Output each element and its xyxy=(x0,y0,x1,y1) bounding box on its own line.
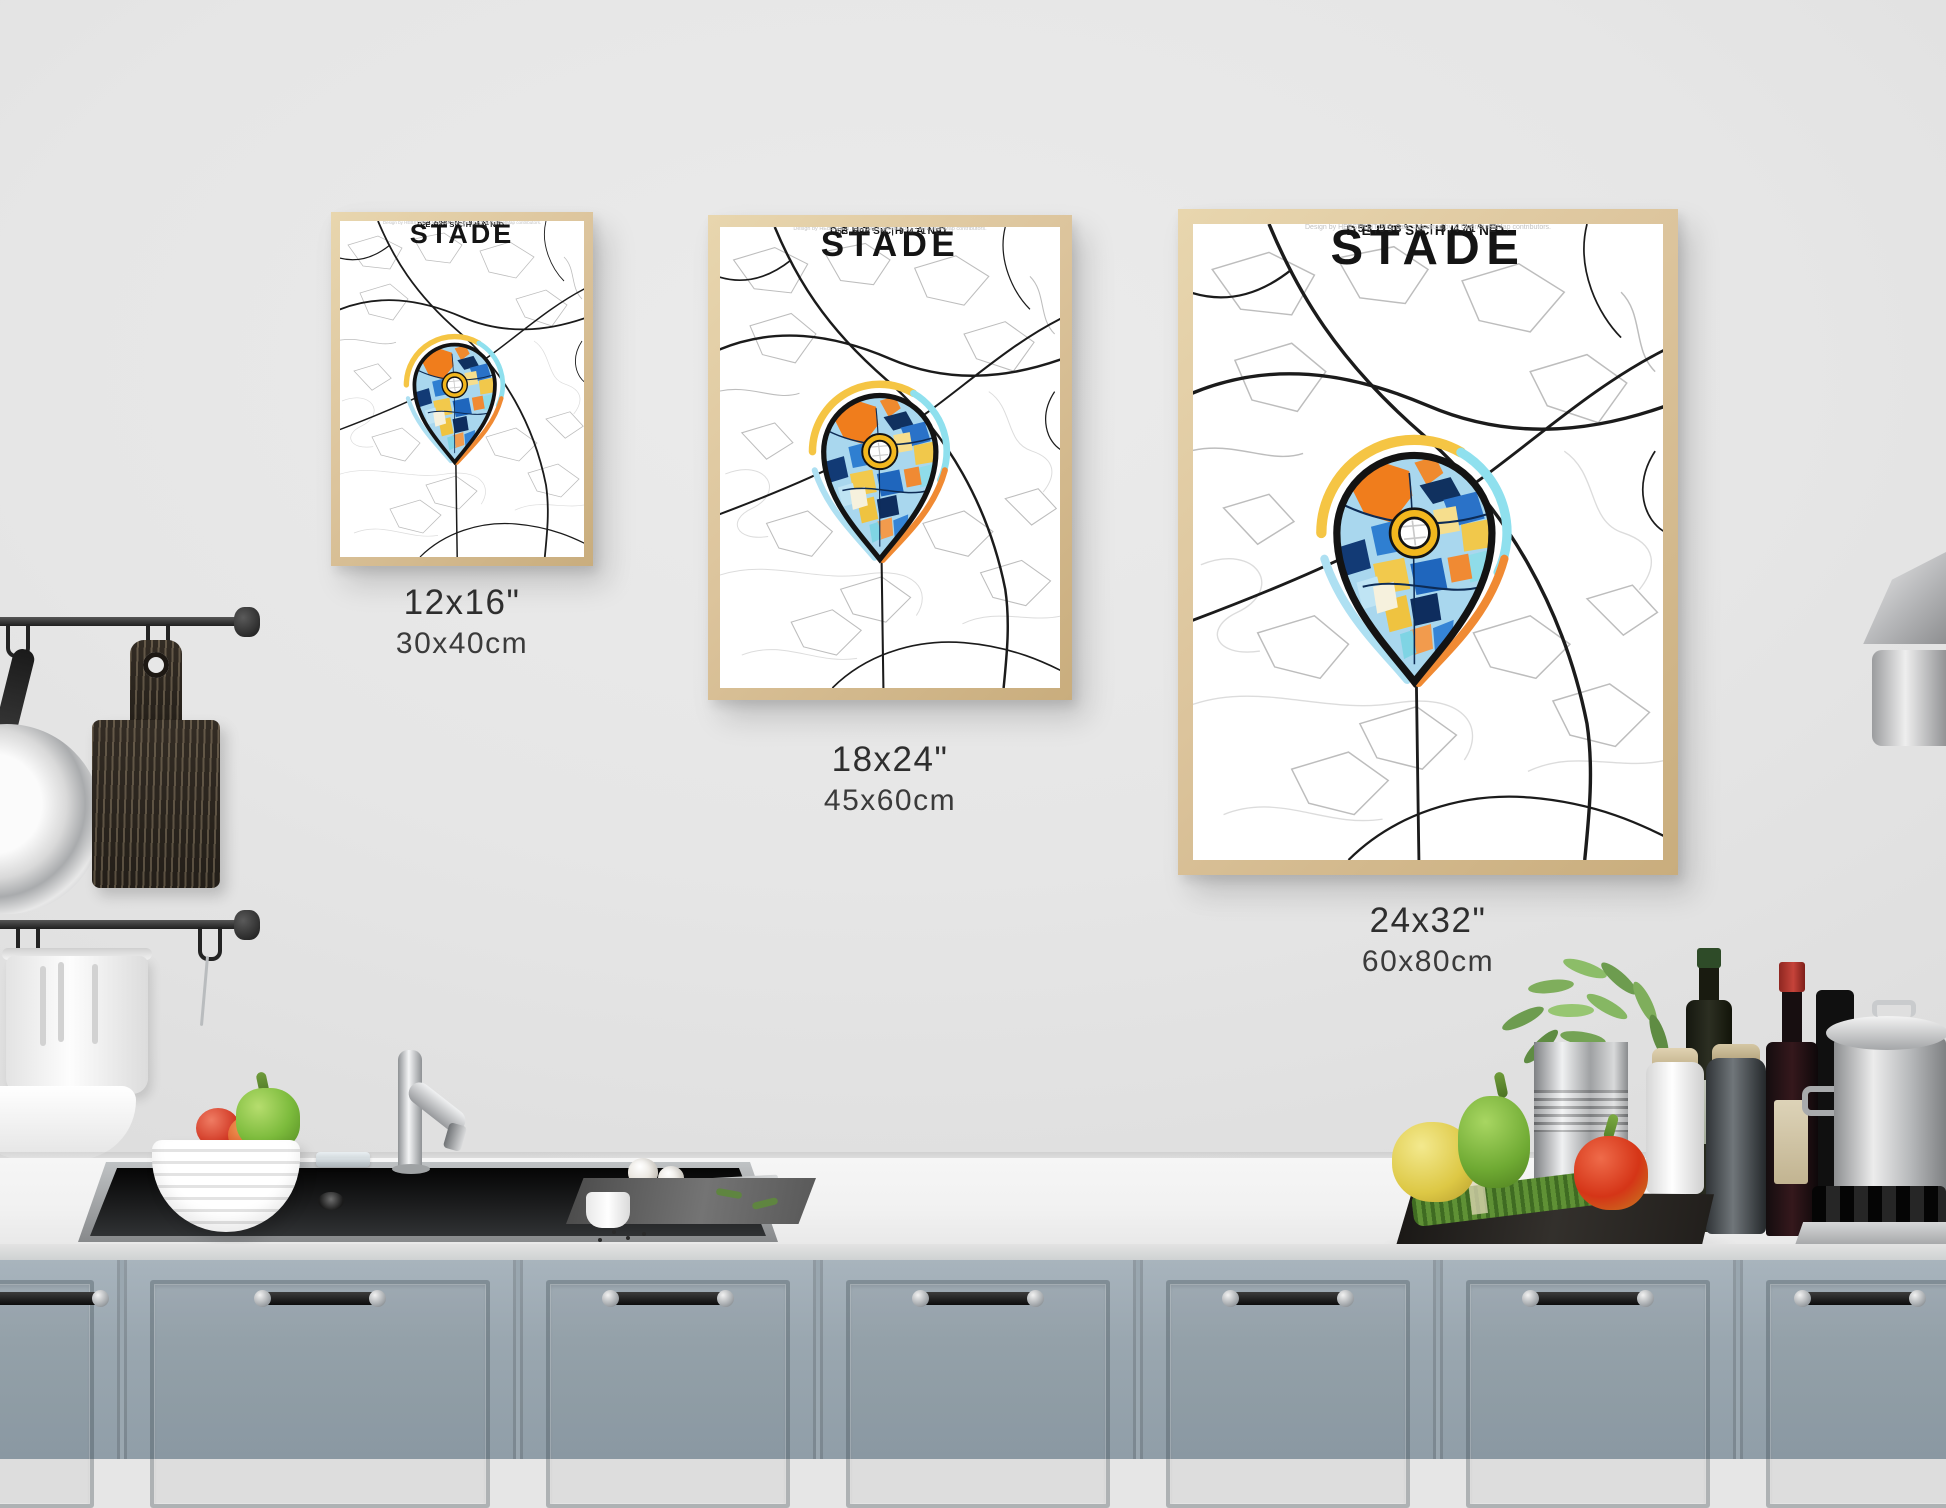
small-white-cup xyxy=(586,1192,630,1228)
size-inches: 18x24" xyxy=(824,742,956,777)
door-panel xyxy=(1166,1280,1410,1508)
size-label-12x16: 12x16" 30x40cm xyxy=(396,585,528,659)
size-cm: 60x80cm xyxy=(1362,947,1494,977)
map-pin-art xyxy=(1311,386,1518,736)
peppercorn xyxy=(598,1238,602,1242)
poster-24x32: STADE DEUTSCHLAND 53,593° N | 9,471° E D… xyxy=(1178,209,1678,875)
cabinet-door xyxy=(1440,1260,1736,1459)
wine-bottle-cap xyxy=(1779,962,1805,992)
steel-canister xyxy=(1872,650,1946,746)
poster-18x24: STADE DEUTSCHLAND 53,593° N | 9,471° E D… xyxy=(708,215,1072,700)
dish-in-bucket xyxy=(92,964,98,1044)
dish-in-bucket xyxy=(58,962,64,1042)
peppercorn xyxy=(642,1232,646,1236)
door-handle xyxy=(1801,1292,1919,1305)
door-panel xyxy=(1466,1280,1710,1508)
cutting-board-hole xyxy=(143,652,169,678)
door-panel xyxy=(546,1280,790,1508)
rail-finial xyxy=(234,607,260,637)
poster-print: STADE DEUTSCHLAND 53,593° N | 9,471° E D… xyxy=(720,227,1060,688)
poster-attribution: Design by HEBSTREIT. Map data supported … xyxy=(340,221,584,226)
cutting-board-hanging xyxy=(92,720,220,888)
salt-grinder xyxy=(1646,1062,1704,1194)
peppercorn xyxy=(626,1236,630,1240)
size-label-18x24: 18x24" 45x60cm xyxy=(824,742,956,816)
size-label-24x32: 24x32" 60x80cm xyxy=(1362,903,1494,977)
map-pin-art xyxy=(401,307,508,492)
s-hook xyxy=(198,927,222,961)
door-handle xyxy=(1529,1292,1647,1305)
wine-bottle-label xyxy=(1774,1100,1808,1184)
door-handle xyxy=(919,1292,1037,1305)
red-bell-pepper xyxy=(1574,1136,1648,1210)
peppercorn xyxy=(612,1230,616,1234)
poster-attribution: Design by HEBSTREIT. Map data supported … xyxy=(720,227,1060,233)
poster-print: STADE DEUTSCHLAND 53,593° N | 9,471° E D… xyxy=(1193,224,1663,860)
poster-print: STADE DEUTSCHLAND 53,593° N | 9,471° E D… xyxy=(340,221,584,557)
cabinet-door xyxy=(820,1260,1136,1459)
door-handle xyxy=(0,1292,102,1305)
utensil-bucket xyxy=(6,956,148,1094)
door-handle xyxy=(1229,1292,1347,1305)
cabinet-door xyxy=(520,1260,816,1459)
oil-bottle-cap xyxy=(1697,948,1721,968)
pot-lid-handle xyxy=(1872,1000,1916,1017)
door-panel xyxy=(150,1280,490,1508)
dish-in-bucket xyxy=(40,966,46,1046)
cabinet-door xyxy=(0,1260,120,1459)
faucet-base xyxy=(392,1164,430,1174)
pepper-grinder xyxy=(1706,1058,1766,1234)
door-panel xyxy=(0,1280,94,1508)
poster-12x16: STADE DEUTSCHLAND 53,593° N | 9,471° E D… xyxy=(331,212,593,566)
cabinet-door xyxy=(124,1260,516,1459)
faucet xyxy=(398,1050,422,1172)
wall-rail-top xyxy=(0,617,258,626)
cabinet-run xyxy=(0,1260,1946,1459)
door-panel xyxy=(846,1280,1110,1508)
glass-soap-dish xyxy=(316,1152,370,1167)
pot-lid xyxy=(1826,1016,1946,1050)
map-pin-art xyxy=(805,345,955,599)
size-inches: 24x32" xyxy=(1362,903,1494,938)
rail-finial xyxy=(234,910,260,940)
cabinet-door xyxy=(1740,1260,1946,1459)
counter-front-edge xyxy=(0,1244,1946,1260)
poster-attribution: Design by HEBSTREIT. Map data supported … xyxy=(1193,224,1663,231)
wine-bottle-neck xyxy=(1782,986,1802,1046)
cabinet-door xyxy=(1140,1260,1436,1459)
green-bell-pepper xyxy=(1458,1096,1530,1188)
size-cm: 30x40cm xyxy=(396,629,528,659)
door-panel xyxy=(1766,1280,1946,1508)
door-handle xyxy=(609,1292,727,1305)
door-handle xyxy=(261,1292,379,1305)
size-inches: 12x16" xyxy=(396,585,528,620)
size-cm: 45x60cm xyxy=(824,786,956,816)
sink-drain xyxy=(318,1192,344,1210)
